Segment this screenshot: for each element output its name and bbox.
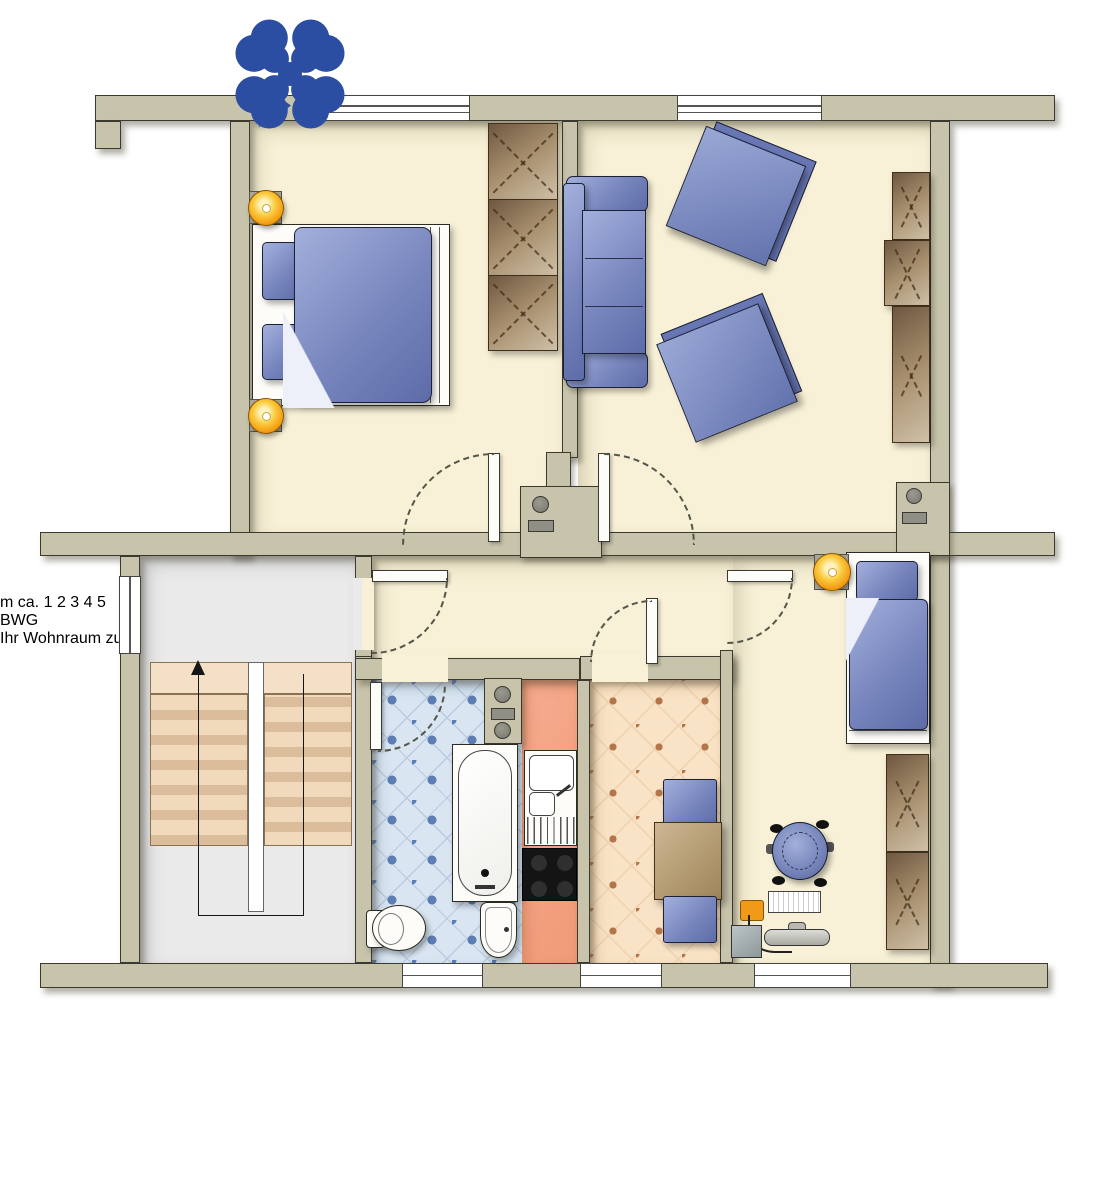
sofa-seat [582, 210, 646, 354]
scale-tick-4: 4 [84, 594, 93, 611]
window-glass-line [678, 105, 821, 107]
sofa-cushion-line [585, 306, 643, 307]
stair-path-line [198, 674, 304, 916]
scale-tick-1: 1 [44, 594, 53, 611]
pipe-icon [906, 488, 922, 504]
wardrobe-section [488, 199, 558, 276]
wall-dining-smallroom [720, 650, 733, 963]
lamp-bulb-icon [262, 204, 271, 213]
keyboard-icon [768, 891, 821, 913]
wardrobe-section [886, 852, 929, 950]
balcony [0, 0, 260, 69]
washbasin [480, 902, 517, 958]
pillow [856, 561, 918, 601]
scale-tick-2: 2 [57, 594, 66, 611]
flower-icon [0, 115, 24, 139]
scale-tick-5: 5 [97, 594, 106, 611]
dining-table [654, 822, 722, 900]
toilet-bowl-line [378, 913, 404, 945]
stairwell-window [119, 576, 141, 654]
office-chair-seat-line [782, 832, 818, 870]
clover-icon [230, 14, 350, 134]
wardrobe-section [886, 754, 929, 852]
window-glass-line [403, 975, 482, 977]
office-chair [772, 822, 828, 880]
bathtub [452, 744, 518, 902]
floor-plan: m ca. 1 2 3 4 5 BWG Ihr Wohnraum zum Glü… [0, 0, 1112, 1200]
window-glass-line [129, 577, 131, 653]
tv-mount-icon [0, 431, 11, 445]
wall-kitchen-dining [577, 680, 590, 963]
bathtub-drain-icon [481, 869, 489, 877]
tray-handle-icon [788, 922, 806, 930]
chair-foot [814, 878, 827, 887]
tv-icon [0, 319, 16, 431]
keyboard-tray-icon [764, 929, 830, 946]
blanket [849, 599, 928, 730]
window-glass-line [581, 975, 661, 977]
dining-chair [663, 896, 717, 943]
green-plant-icon [0, 173, 66, 235]
vent-slot-icon [528, 520, 554, 532]
bed-foot-line [849, 730, 927, 731]
wardrobe-section [488, 123, 558, 200]
bathtub-faucet-icon [475, 885, 495, 889]
blanket-fold [846, 598, 898, 682]
vent-slot-icon [491, 708, 515, 720]
lamp-bulb-icon [262, 412, 271, 421]
bathroom-door-opening [382, 654, 448, 682]
flower-icon [0, 139, 18, 157]
sofa-cushion-line [585, 258, 643, 259]
wall-top-left-stub [95, 121, 121, 149]
scale-prefix: m ca. [0, 594, 39, 611]
tv-sideboard-section [884, 240, 930, 306]
pipe-icon [494, 722, 511, 739]
toilet [372, 905, 426, 951]
small-bedroom-window [754, 963, 851, 988]
drainboard-ridges [527, 817, 575, 844]
round-coffee-table [0, 235, 84, 319]
tv-sideboard-section [892, 306, 930, 443]
window-glass-line [755, 975, 850, 977]
pipe-icon [494, 686, 511, 703]
computer-icon [731, 925, 762, 958]
dining-chair [663, 779, 717, 827]
bathroom-window [402, 963, 483, 988]
kitchen-sink-unit [524, 750, 577, 846]
wall-bedroom-left [230, 121, 250, 556]
wall-bottom [40, 963, 1048, 988]
pipe-icon [532, 496, 549, 513]
vent-slot-icon [902, 512, 927, 524]
window-glass-line [678, 112, 821, 114]
stove [522, 848, 577, 901]
chimney-column [546, 452, 571, 490]
wardrobe-section [488, 275, 558, 351]
tv-sideboard-section [892, 172, 930, 240]
desk [0, 445, 114, 520]
blanket-fold [283, 288, 353, 408]
washbasin-faucet-icon [504, 927, 509, 932]
dining-window [580, 963, 662, 988]
chair-foot [772, 876, 785, 885]
balcony-door [677, 95, 822, 121]
stair-up-arrow-icon [191, 660, 205, 675]
scale-tick-3: 3 [70, 594, 79, 611]
flower-plant-icon [0, 115, 74, 173]
flower-icon [0, 157, 16, 173]
lamp-bulb-icon [828, 568, 837, 577]
bed-foot-line [439, 227, 440, 403]
blanket [294, 227, 432, 403]
sink-basin-small [529, 792, 555, 816]
chair-foot [816, 820, 829, 829]
